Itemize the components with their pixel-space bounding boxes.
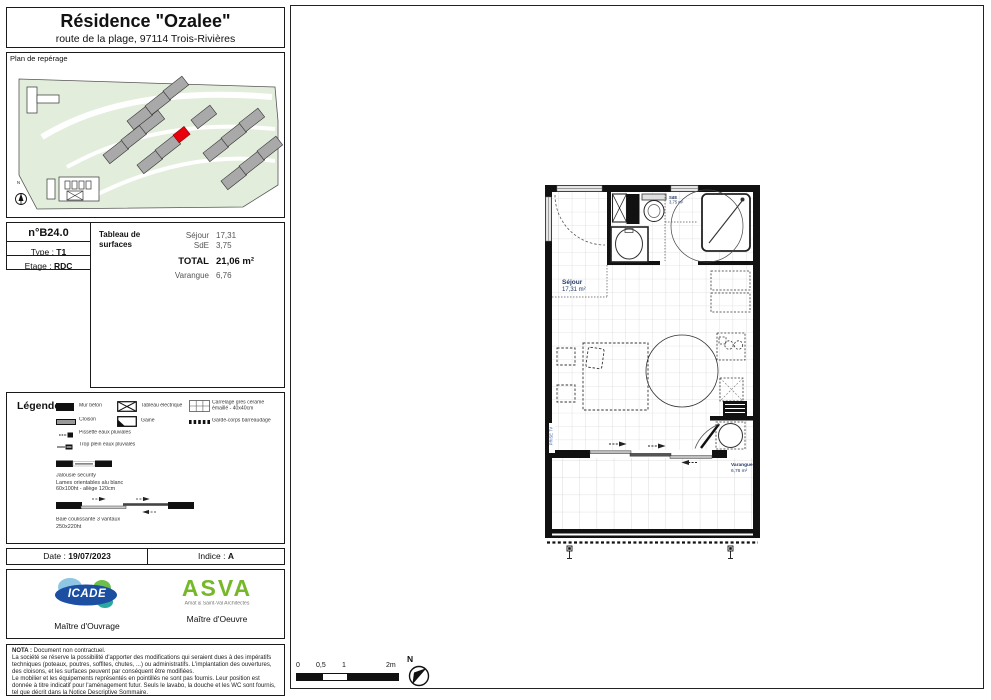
electrical-panel-icon [613,194,627,222]
architect-caption: Maître d'Oeuvre [157,614,277,624]
drawing-sheet: Résidence "Ozalee" route de la plage, 97… [0,0,991,700]
surface-row: SdE 3,75 [151,241,279,251]
unit-type-box: Type : T1 [6,241,91,256]
index-cell: Indice : A [148,549,284,564]
index-label: Indice : [198,551,228,561]
floor-plan: Séjour 17,31 m² SdE 3,75 m² Varangue 6,7… [545,185,760,565]
sliding-bay [590,451,712,459]
electrical-panel-legend-label: Tableau électrique [141,403,182,408]
scale-tick-1: 1 [342,662,346,669]
sliding-bay-legend-icon [56,497,196,514]
sde-label-group: SdE 3,75 m² [669,196,683,206]
grille-icon [723,401,747,416]
asva-logo-text: ASVA [157,577,277,600]
surfaces-heading: Tableau de surfaces [99,230,140,250]
date-value: 19/07/2023 [68,551,111,561]
nota-paragraph: Le mobilier et les équipements représent… [12,676,279,697]
tile-legend-label: Carrelage grès cérame émaillé - 40x40cm [212,400,264,412]
scale-tick-0: 0 [296,662,300,669]
site-plan-map [7,57,284,217]
drawing-area: Séjour 17,31 m² SdE 3,75 m² Varangue 6,7… [290,5,984,689]
electrical-panel-legend-icon [117,401,137,412]
title-block: Résidence "Ozalee" route de la plage, 97… [6,7,285,48]
partition-legend-label: Cloison [79,417,96,422]
varangue-floor-tiles [552,458,753,529]
partition-legend-icon [56,419,76,425]
scale-tick-05: 0,5 [316,662,326,669]
unit-floor-box: Etage : RDC [6,255,91,270]
legend-panel: Légende : Mur béton Tableau électrique C… [6,392,285,544]
sejour-label-group: Séjour 17,31 m² [562,279,586,294]
duct-icon [627,194,640,224]
duct-legend-label: Gaine [141,418,155,423]
wall-legend-icon [56,403,74,411]
owner-block: ICADE Maître d'Ouvrage [31,575,143,631]
site-plan-panel: Plan de repérage [6,52,285,218]
site-north-arrow-icon [16,194,27,205]
unit-floor-value: RDC [54,261,72,271]
varangue-label-group: Varangue 6,76 m² [731,463,753,475]
sliding-bay-legend-label: Baie coulissante 3 vantaux 250x220ht [56,517,120,531]
scale-bar: 0 0,5 1 2m [294,662,404,688]
surface-row: Séjour 17,31 [151,231,279,241]
nota-paragraph: La société se réserve la possibilité d'a… [12,655,279,676]
revision-bar: Date : 19/07/2023 Indice : A [6,548,285,565]
rain-spout-icon [567,546,572,559]
overflow-legend-icon [57,443,74,451]
jalousie-legend-icon [56,459,112,469]
date-label: Date : [43,551,68,561]
scale-tick-2: 2m [386,662,396,669]
architect-block: ASVA Amat & Saint-Val Architectes Maître… [157,577,277,624]
surface-total-row: TOTAL 21,06 m² [151,256,279,268]
washbasin-icon [611,227,648,262]
north-arrow-icon [403,659,435,691]
date-cell: Date : 19/07/2023 [7,549,148,564]
stakeholders-panel: ICADE Maître d'Ouvrage ASVA Amat & Saint… [6,569,285,639]
railing-legend-label: Garde-corps barreaudage [212,418,271,423]
project-address: route de la plage, 97114 Trois-Rivières [7,33,284,45]
overflow-spout-icon [728,546,733,559]
surface-extra-row: Varangue 6,76 [151,271,279,281]
nota-panel: NOTA : Document non contractuel. La soci… [6,644,285,696]
surfaces-panel: Tableau de surfaces Séjour 17,31 SdE 3,7… [90,222,285,388]
low-wall [710,416,755,421]
project-title: Résidence "Ozalee" [7,11,284,32]
owner-caption: Maître d'Ouvrage [31,621,143,631]
floor-plan-svg [545,185,760,565]
wall-legend-label: Mur béton [79,403,102,408]
surfaces-rows: Séjour 17,31 SdE 3,75 TOTAL 21,06 m² Var… [151,231,279,281]
unit-floor-label: Etage : [25,261,54,271]
overflow-legend-label: Trop plein eaux pluviales [79,442,135,447]
railing-legend-icon [189,419,210,425]
north-arrow: N [403,654,437,690]
nota-label: NOTA : [12,648,34,654]
icade-logo-text: ICADE [31,588,143,600]
site-north-label: N [17,181,20,185]
jalousie-legend-label: Jalousie security Lames orientables alu … [56,473,123,493]
architect-subtitle: Amat & Saint-Val Architectes [166,601,268,606]
spout-legend-icon [59,431,74,439]
toilet-icon [642,194,666,222]
scale-bar-rule [296,673,399,681]
index-value: A [228,551,234,561]
tile-legend-icon [189,400,210,412]
nota-intro-line: NOTA : Document non contractuel. [12,648,279,655]
unit-number-box: n°B24.0 [6,222,91,242]
spout-legend-label: Pissette eaux pluviales [79,430,131,435]
tv-socket-label: PRISE TV [550,424,554,447]
duct-legend-icon [117,416,137,427]
unit-number: n°B24.0 [28,227,68,239]
